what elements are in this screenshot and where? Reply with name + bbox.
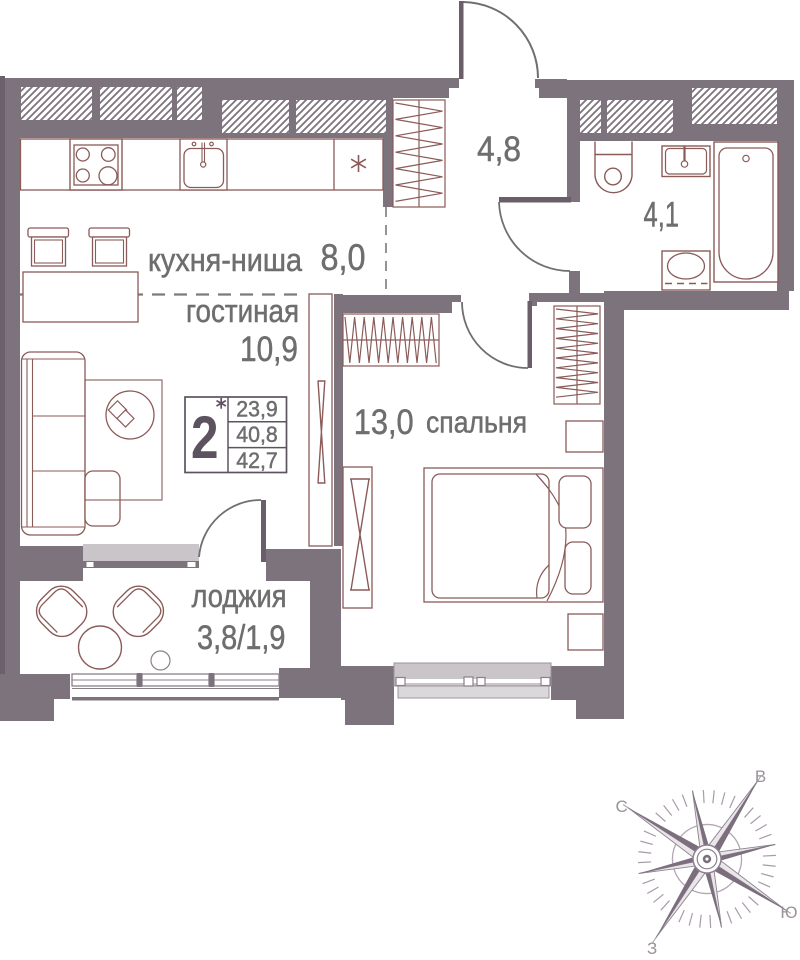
svg-text:гостиная: гостиная bbox=[186, 293, 299, 329]
svg-text:13,0: 13,0 bbox=[354, 403, 414, 442]
svg-text:8,0: 8,0 bbox=[321, 237, 366, 278]
svg-text:спальня: спальня bbox=[426, 405, 527, 440]
svg-text:4,1: 4,1 bbox=[644, 196, 680, 235]
svg-text:40,8: 40,8 bbox=[236, 422, 278, 447]
svg-text:4,8: 4,8 bbox=[477, 130, 521, 169]
svg-text:Ю: Ю bbox=[780, 903, 797, 922]
svg-text:С: С bbox=[616, 797, 628, 816]
svg-text:кухня-ниша: кухня-ниша bbox=[148, 242, 302, 278]
svg-text:10,9: 10,9 bbox=[240, 330, 298, 369]
svg-text:З: З bbox=[647, 939, 657, 955]
svg-text:42,7: 42,7 bbox=[236, 448, 278, 473]
svg-text:лоджия: лоджия bbox=[192, 578, 287, 614]
svg-text:В: В bbox=[755, 767, 766, 786]
svg-text:2: 2 bbox=[191, 404, 219, 471]
svg-text:3,8/1,9: 3,8/1,9 bbox=[197, 619, 286, 657]
svg-text:23,9: 23,9 bbox=[236, 397, 278, 422]
